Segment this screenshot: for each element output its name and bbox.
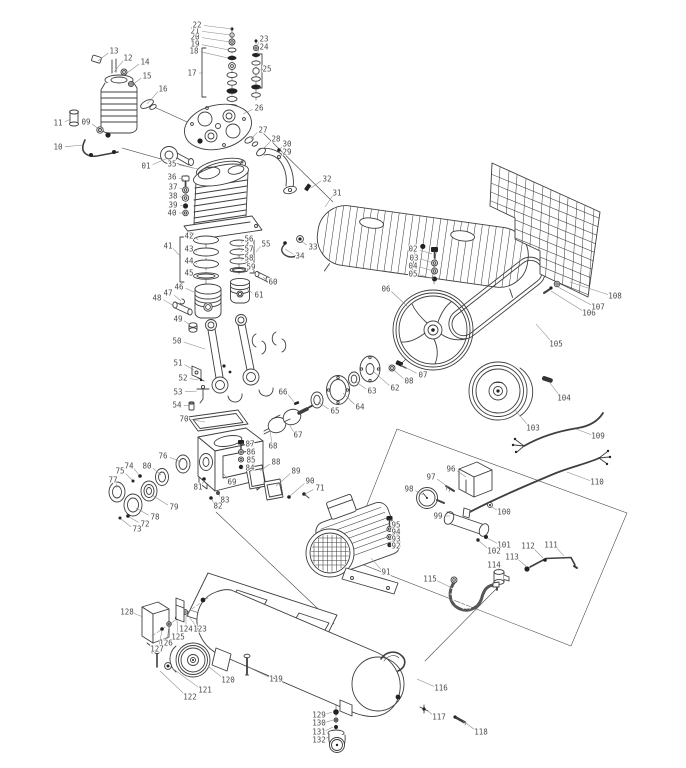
callout-25: 25 xyxy=(262,65,271,74)
callout-55: 55 xyxy=(261,240,270,249)
callout-31: 31 xyxy=(332,189,341,198)
callout-64: 64 xyxy=(355,403,365,412)
callout-14: 14 xyxy=(140,58,150,67)
callout-34: 34 xyxy=(295,252,305,261)
callout-47: 47 xyxy=(163,289,172,298)
callout-45: 45 xyxy=(184,269,193,278)
callout-09: 09 xyxy=(81,118,90,127)
callout-36: 36 xyxy=(167,173,177,182)
callout-16: 16 xyxy=(158,85,168,94)
callout-76: 76 xyxy=(158,452,168,461)
callout-67: 67 xyxy=(293,431,302,440)
callout-77: 77 xyxy=(108,476,117,485)
callout-98: 98 xyxy=(404,485,414,494)
callout-81: 81 xyxy=(193,483,202,492)
callout-32: 32 xyxy=(322,175,331,184)
callout-86: 86 xyxy=(246,448,256,457)
callout-118: 118 xyxy=(474,728,488,737)
callout-68: 68 xyxy=(268,442,278,451)
leader-line-130 xyxy=(326,720,333,722)
callout-83: 83 xyxy=(220,496,229,505)
shaft-key xyxy=(541,376,553,384)
callout-90: 90 xyxy=(305,477,315,486)
callout-132: 132 xyxy=(312,736,326,745)
piston-first-stage xyxy=(195,284,221,318)
callout-43: 43 xyxy=(184,245,193,254)
air-tank xyxy=(197,590,466,725)
callout-100: 100 xyxy=(497,508,511,517)
leader-line-52 xyxy=(190,379,198,381)
callout-130: 130 xyxy=(312,719,326,728)
oil-dipstick-plugs xyxy=(189,366,209,410)
callout-79: 79 xyxy=(169,503,178,512)
callout-29: 29 xyxy=(282,148,291,157)
callout-28: 28 xyxy=(271,135,281,144)
leader-line-22 xyxy=(204,26,232,30)
leader-line-106 xyxy=(551,291,583,311)
callout-49: 49 xyxy=(173,315,182,324)
callout-50: 50 xyxy=(172,337,182,346)
callout-119: 119 xyxy=(269,675,283,684)
callout-89: 89 xyxy=(291,467,300,476)
callout-121: 121 xyxy=(198,686,212,695)
callout-01: 01 xyxy=(141,162,150,171)
diagram-canvas: 0102030405060708091011121314151617181920… xyxy=(0,0,686,768)
callout-69: 69 xyxy=(227,478,236,487)
callout-65: 65 xyxy=(330,407,339,416)
callout-44: 44 xyxy=(184,257,194,266)
cylinder-head xyxy=(180,98,256,156)
leader-line-115 xyxy=(437,581,451,588)
leader-line-109 xyxy=(576,429,591,435)
callout-35: 35 xyxy=(167,160,176,169)
callout-46: 46 xyxy=(174,283,184,292)
leader-line-75 xyxy=(126,473,132,480)
valve-stacks xyxy=(202,28,262,110)
leader-line-66 xyxy=(288,395,294,402)
callout-17: 17 xyxy=(187,69,196,78)
leader-line-55 xyxy=(256,247,261,253)
piston-second-stage xyxy=(231,278,250,303)
callout-109: 109 xyxy=(591,432,605,441)
leader-line-118 xyxy=(463,721,475,730)
callout-80: 80 xyxy=(142,462,152,471)
callout-52: 52 xyxy=(178,374,187,383)
leader-line-06 xyxy=(391,292,407,307)
callout-112: 112 xyxy=(521,542,535,551)
callout-74: 74 xyxy=(124,462,134,471)
callout-26: 26 xyxy=(254,104,264,113)
leader-line-27 xyxy=(251,132,257,139)
leader-line-110 xyxy=(567,472,590,481)
leader-line-48 xyxy=(163,300,174,306)
motor-pulley xyxy=(469,362,533,420)
head-bolts xyxy=(182,176,189,216)
callout-27: 27 xyxy=(258,126,267,135)
callout-102: 102 xyxy=(487,547,501,556)
callout-42: 42 xyxy=(184,232,193,241)
callout-08: 08 xyxy=(404,377,414,386)
callout-60: 60 xyxy=(268,278,278,287)
callout-53: 53 xyxy=(173,388,182,397)
callout-108: 108 xyxy=(608,292,622,301)
leader-line-79 xyxy=(152,495,168,505)
leader-line-20 xyxy=(202,38,230,42)
crankshaft xyxy=(264,401,315,435)
callout-115: 115 xyxy=(423,575,437,584)
callout-120: 120 xyxy=(221,676,235,685)
callout-57: 57 xyxy=(244,245,253,254)
callout-73: 73 xyxy=(132,525,141,534)
callout-104: 104 xyxy=(557,394,571,403)
callout-117: 117 xyxy=(432,713,446,722)
callout-84: 84 xyxy=(245,464,255,473)
callout-63: 63 xyxy=(367,387,376,396)
callout-33: 33 xyxy=(308,243,317,252)
callout-62: 62 xyxy=(390,384,399,393)
callout-51: 51 xyxy=(173,359,182,368)
leader-line-71 xyxy=(305,490,314,495)
leader-line-47 xyxy=(174,295,181,301)
leader-line-46 xyxy=(186,288,196,293)
breather xyxy=(161,147,194,166)
leader-line-129 xyxy=(326,712,332,714)
callout-70: 70 xyxy=(179,415,189,424)
callout-75: 75 xyxy=(115,467,124,476)
leader-line-15 xyxy=(132,78,141,85)
discharge-tube xyxy=(524,558,577,572)
leader-line-97 xyxy=(437,479,448,487)
callout-127: 127 xyxy=(150,645,164,654)
callout-13: 13 xyxy=(109,47,118,56)
callout-125: 125 xyxy=(171,633,185,642)
leader-line-19 xyxy=(202,45,229,50)
callout-05: 05 xyxy=(408,270,417,279)
callout-30: 30 xyxy=(282,140,292,149)
callout-59: 59 xyxy=(246,263,255,272)
callout-99: 99 xyxy=(433,512,442,521)
callout-72: 72 xyxy=(140,520,149,529)
callout-85: 85 xyxy=(246,456,255,465)
callout-116: 116 xyxy=(434,684,448,693)
callout-114: 114 xyxy=(487,561,501,570)
callout-11: 11 xyxy=(53,119,62,128)
leader-line-101 xyxy=(487,538,498,544)
cylinder-block xyxy=(184,160,262,240)
leader-line-125 xyxy=(177,620,178,633)
callout-07: 07 xyxy=(418,371,427,380)
exploded-diagram-art: 0102030405060708091011121314151617181920… xyxy=(0,0,686,768)
leader-line-18 xyxy=(201,52,228,58)
leader-line-53 xyxy=(185,391,197,392)
leader-line-07 xyxy=(401,365,417,373)
air-filter xyxy=(91,55,157,133)
callout-122: 122 xyxy=(183,693,197,702)
rod-bushing xyxy=(189,323,197,332)
callout-78: 78 xyxy=(150,513,160,522)
leader-line-08 xyxy=(393,369,403,379)
leader-line-113 xyxy=(518,559,527,567)
leader-line-50 xyxy=(184,342,205,349)
callout-37: 37 xyxy=(168,183,177,192)
leader-line-49 xyxy=(184,321,190,325)
leader-line-116 xyxy=(417,679,434,687)
callout-58: 58 xyxy=(244,254,254,263)
callout-96: 96 xyxy=(446,465,456,474)
callout-61: 61 xyxy=(254,291,263,300)
callout-111: 111 xyxy=(544,541,558,550)
callout-22: 22 xyxy=(192,21,201,30)
callout-48: 48 xyxy=(152,294,162,303)
callout-10: 10 xyxy=(53,143,63,152)
caster-assembly xyxy=(328,709,345,752)
leader-line-14 xyxy=(127,64,139,73)
leader-line-21 xyxy=(202,31,231,35)
callout-56: 56 xyxy=(244,235,254,244)
callout-87: 87 xyxy=(245,440,254,449)
callout-38: 38 xyxy=(168,192,178,201)
callout-88: 88 xyxy=(271,458,281,467)
callout-71: 71 xyxy=(315,484,324,493)
callout-41: 41 xyxy=(163,242,172,251)
callout-103: 103 xyxy=(526,424,540,433)
leader-line-30 xyxy=(280,147,282,150)
flywheel-pulley xyxy=(393,290,473,370)
leader-line-72 xyxy=(129,517,139,522)
leader-line-35 xyxy=(179,165,198,169)
wrist-pin-first xyxy=(173,299,192,315)
callout-110: 110 xyxy=(590,478,604,487)
leader-line-28 xyxy=(264,141,270,148)
leader-line-10 xyxy=(65,145,83,147)
callout-66: 66 xyxy=(278,388,288,397)
callout-97: 97 xyxy=(426,473,435,482)
connecting-rods xyxy=(206,315,286,403)
callout-12: 12 xyxy=(123,54,132,63)
callout-06: 06 xyxy=(381,285,391,294)
bearing-train-right xyxy=(311,356,406,408)
leader-line-73 xyxy=(121,519,131,527)
callout-123: 123 xyxy=(193,625,207,634)
callout-113: 113 xyxy=(505,553,519,562)
callout-02: 02 xyxy=(408,245,417,254)
callout-91: 91 xyxy=(381,568,390,577)
callout-128: 128 xyxy=(120,608,134,617)
callout-40: 40 xyxy=(167,209,177,218)
callout-105: 105 xyxy=(549,340,563,349)
leader-line-112 xyxy=(534,549,544,559)
callout-15: 15 xyxy=(142,72,151,81)
callout-24: 24 xyxy=(259,43,269,52)
leader-line-34 xyxy=(285,249,294,254)
callout-95: 95 xyxy=(391,521,400,530)
callout-54: 54 xyxy=(172,401,182,410)
leader-line-74 xyxy=(134,469,139,475)
callout-107: 107 xyxy=(591,303,605,312)
